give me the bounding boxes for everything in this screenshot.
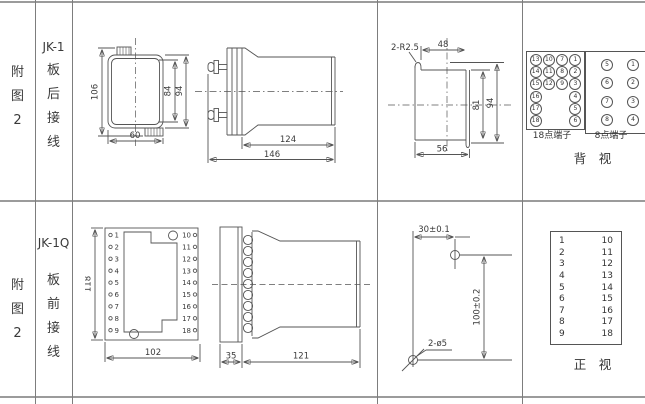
column-rule-2 bbox=[72, 0, 73, 404]
terminal-circle: 9 bbox=[556, 78, 568, 90]
terminal-circle: 3 bbox=[569, 78, 581, 90]
terminal-gap bbox=[557, 104, 567, 114]
terminal-number: 16 bbox=[182, 303, 191, 311]
table-row: 413 bbox=[559, 272, 613, 281]
panel-cutout-drawing: 81 94 48 2-R2.5 56 bbox=[380, 30, 520, 170]
dim-121: 121 bbox=[293, 352, 309, 362]
border-top bbox=[0, 1, 645, 3]
dim-81: 81 bbox=[472, 100, 482, 111]
terminal-gap bbox=[544, 92, 554, 102]
table-row: 716 bbox=[559, 307, 613, 316]
model-char: 线 bbox=[47, 136, 60, 149]
model-code: JK-1Q bbox=[38, 237, 70, 249]
dim-48: 48 bbox=[438, 40, 449, 50]
terminal-circle: 7 bbox=[556, 54, 568, 66]
connector-outline bbox=[124, 232, 177, 332]
terminal-circle: 14 bbox=[530, 66, 542, 78]
terminal-circle: 18 bbox=[530, 115, 542, 127]
model-label-bottom: JK-1Q 板 前 接 线 bbox=[35, 237, 72, 359]
terminal-circle: 16 bbox=[530, 91, 542, 103]
table-row: 211 bbox=[559, 249, 613, 258]
terminal-gap bbox=[544, 116, 554, 126]
dim-106: 106 bbox=[91, 84, 101, 100]
body-bottom bbox=[252, 327, 360, 338]
front-view-drawing: 1 2 3 4 5 6 7 8 9 10 11 12 13 14 15 16 1… bbox=[85, 210, 215, 375]
terminal-right: 10 bbox=[602, 237, 613, 246]
table-row: 615 bbox=[559, 295, 613, 304]
note-2-R2.5: 2-R2.5 bbox=[391, 43, 419, 53]
terminal-circle: 10 bbox=[543, 54, 555, 66]
terminal-right: 18 bbox=[602, 330, 613, 339]
dim-102: 102 bbox=[145, 348, 161, 358]
terminal-right: 11 bbox=[602, 249, 613, 258]
terminal-circle: 15 bbox=[530, 78, 542, 90]
terminal-right: 16 bbox=[602, 307, 613, 316]
model-code: JK-1 bbox=[42, 41, 64, 53]
model-char: 接 bbox=[47, 112, 60, 125]
rear-view-label: 背 视 bbox=[545, 148, 640, 167]
terminal-number: 14 bbox=[182, 279, 191, 287]
terminal-gap bbox=[557, 92, 567, 102]
mounting-hole bbox=[130, 330, 139, 339]
manual-page: 附 图 2 JK-1 板 后 接 线 附 图 2 JK-1Q 板 前 接 线 bbox=[0, 0, 645, 404]
figure-char: 2 bbox=[13, 327, 21, 340]
top-tab bbox=[117, 47, 131, 55]
terminal-circle: 12 bbox=[543, 78, 555, 90]
figure-char: 图 bbox=[11, 303, 24, 316]
dim-146: 146 bbox=[264, 150, 280, 160]
model-char: 前 bbox=[47, 298, 60, 311]
terminal-gap bbox=[544, 104, 554, 114]
dim-84: 84 bbox=[164, 86, 174, 97]
label-8pt-terminals: 8点端子 bbox=[583, 128, 639, 141]
terminal-number: 6 bbox=[115, 291, 120, 299]
drilling-plan-drawing: 30±0.1 100±0.2 2-ø5 bbox=[390, 215, 525, 390]
bottom-tab bbox=[145, 128, 163, 136]
model-label-top: JK-1 板 后 接 线 bbox=[35, 41, 72, 149]
model-char: 接 bbox=[47, 322, 60, 335]
terminal-box-8pt: 5 1 6 2 7 3 8 4 bbox=[585, 51, 645, 134]
dim-94: 94 bbox=[486, 98, 496, 109]
left-terminal-column: 1 2 3 4 5 6 7 8 9 bbox=[109, 232, 120, 335]
figure-char: 附 bbox=[11, 66, 24, 79]
dim-56: 56 bbox=[437, 145, 448, 155]
terminal-circle: 4 bbox=[627, 114, 639, 126]
right-terminal-column: 10 11 12 13 14 15 16 17 18 bbox=[182, 232, 197, 335]
dim-35: 35 bbox=[226, 352, 237, 362]
terminal-left: 1 bbox=[559, 237, 565, 246]
label-18pt-terminals: 18点端子 bbox=[520, 128, 584, 141]
terminal-number: 15 bbox=[182, 291, 191, 299]
terminal-number: 17 bbox=[182, 315, 191, 323]
terminal-left: 5 bbox=[559, 284, 565, 293]
terminal-number: 11 bbox=[182, 244, 191, 252]
terminal-right: 15 bbox=[602, 295, 613, 304]
terminal-right: 17 bbox=[602, 318, 613, 327]
terminal-left: 9 bbox=[559, 330, 565, 339]
table-row: 918 bbox=[559, 330, 613, 339]
terminal-circle: 5 bbox=[569, 103, 581, 115]
terminal-number: 18 bbox=[182, 327, 191, 335]
dim-124: 124 bbox=[280, 135, 296, 145]
terminal-screw bbox=[208, 61, 227, 74]
slot-end bbox=[466, 144, 470, 148]
terminal-screw bbox=[208, 109, 227, 122]
terminal-number: 9 bbox=[115, 327, 119, 335]
terminal-circle: 2 bbox=[627, 77, 639, 89]
figure-label-bottom: 附 图 2 bbox=[0, 279, 35, 340]
terminal-circle: 2 bbox=[569, 66, 581, 78]
terminal-circle: 3 bbox=[627, 96, 639, 108]
figure-char: 2 bbox=[13, 114, 21, 127]
body-top bbox=[227, 48, 335, 57]
terminal-circle: 17 bbox=[530, 103, 542, 115]
terminal-circle: 4 bbox=[569, 91, 581, 103]
figure-label-top: 附 图 2 bbox=[0, 66, 35, 127]
note-2-d5: 2-ø5 bbox=[428, 339, 447, 349]
mounting-hole bbox=[169, 231, 178, 240]
dim-30: 30±0.1 bbox=[418, 225, 449, 235]
column-rule-3 bbox=[377, 0, 378, 404]
terminal-number: 13 bbox=[182, 267, 191, 275]
terminal-left: 7 bbox=[559, 307, 565, 316]
terminal-left: 4 bbox=[559, 272, 565, 281]
side-view-bottom-drawing: 35 121 bbox=[210, 210, 375, 375]
terminal-circle: 6 bbox=[569, 115, 581, 127]
terminal-number: 7 bbox=[115, 303, 119, 311]
dim-118: 118 bbox=[85, 276, 94, 292]
model-char: 板 bbox=[47, 274, 60, 287]
terminal-circle: 13 bbox=[530, 54, 542, 66]
terminal-number: 5 bbox=[115, 279, 119, 287]
front-terminal-table: 110 211 312 413 514 615 716 817 918 bbox=[550, 231, 622, 345]
model-char: 线 bbox=[47, 346, 60, 359]
terminal-circle: 6 bbox=[601, 77, 613, 89]
terminal-box-18pt: 13 10 7 1 14 11 8 2 15 12 9 3 16 4 17 5 … bbox=[526, 51, 585, 130]
model-char: 后 bbox=[47, 88, 60, 101]
terminal-number: 8 bbox=[115, 315, 119, 323]
terminal-left: 3 bbox=[559, 260, 565, 269]
table-row: 110 bbox=[559, 237, 613, 246]
r2p5-notch bbox=[415, 63, 421, 71]
terminal-number: 3 bbox=[115, 255, 119, 263]
terminal-number: 10 bbox=[182, 232, 191, 240]
terminal-left: 8 bbox=[559, 318, 565, 327]
model-char: 板 bbox=[47, 64, 60, 77]
terminal-circle: 1 bbox=[569, 54, 581, 66]
front-view-label: 正 视 bbox=[545, 354, 640, 373]
body-top bbox=[252, 231, 360, 241]
side-view-top-drawing: 124 146 bbox=[195, 30, 345, 170]
table-row: 514 bbox=[559, 284, 613, 293]
dim-100: 100±0.2 bbox=[473, 289, 483, 326]
terminal-circle: 8 bbox=[601, 114, 613, 126]
terminal-circle: 5 bbox=[601, 59, 613, 71]
terminal-right: 14 bbox=[602, 284, 613, 293]
border-bottom bbox=[0, 396, 645, 398]
terminal-gap bbox=[557, 116, 567, 126]
table-row: 312 bbox=[559, 260, 613, 269]
dim-94: 94 bbox=[175, 86, 185, 97]
terminal-number: 2 bbox=[115, 244, 119, 252]
terminal-circle: 11 bbox=[543, 66, 555, 78]
terminal-number: 12 bbox=[182, 255, 191, 263]
terminal-left: 6 bbox=[559, 295, 565, 304]
terminal-number: 1 bbox=[115, 232, 119, 240]
figure-char: 附 bbox=[11, 279, 24, 292]
terminal-circle: 8 bbox=[556, 66, 568, 78]
terminal-right: 12 bbox=[602, 260, 613, 269]
table-row: 817 bbox=[559, 318, 613, 327]
body-bottom bbox=[227, 125, 335, 135]
terminal-number: 4 bbox=[115, 267, 120, 275]
terminal-left: 2 bbox=[559, 249, 565, 258]
dim-60: 60 bbox=[130, 131, 141, 141]
terminal-circle: 1 bbox=[627, 59, 639, 71]
figure-char: 图 bbox=[11, 90, 24, 103]
terminal-circle: 7 bbox=[601, 96, 613, 108]
terminal-bumps bbox=[243, 235, 252, 332]
terminal-right: 13 bbox=[602, 272, 613, 281]
rear-case-drawing: 106 84 94 60 bbox=[85, 30, 200, 170]
row-divider bbox=[0, 200, 645, 202]
